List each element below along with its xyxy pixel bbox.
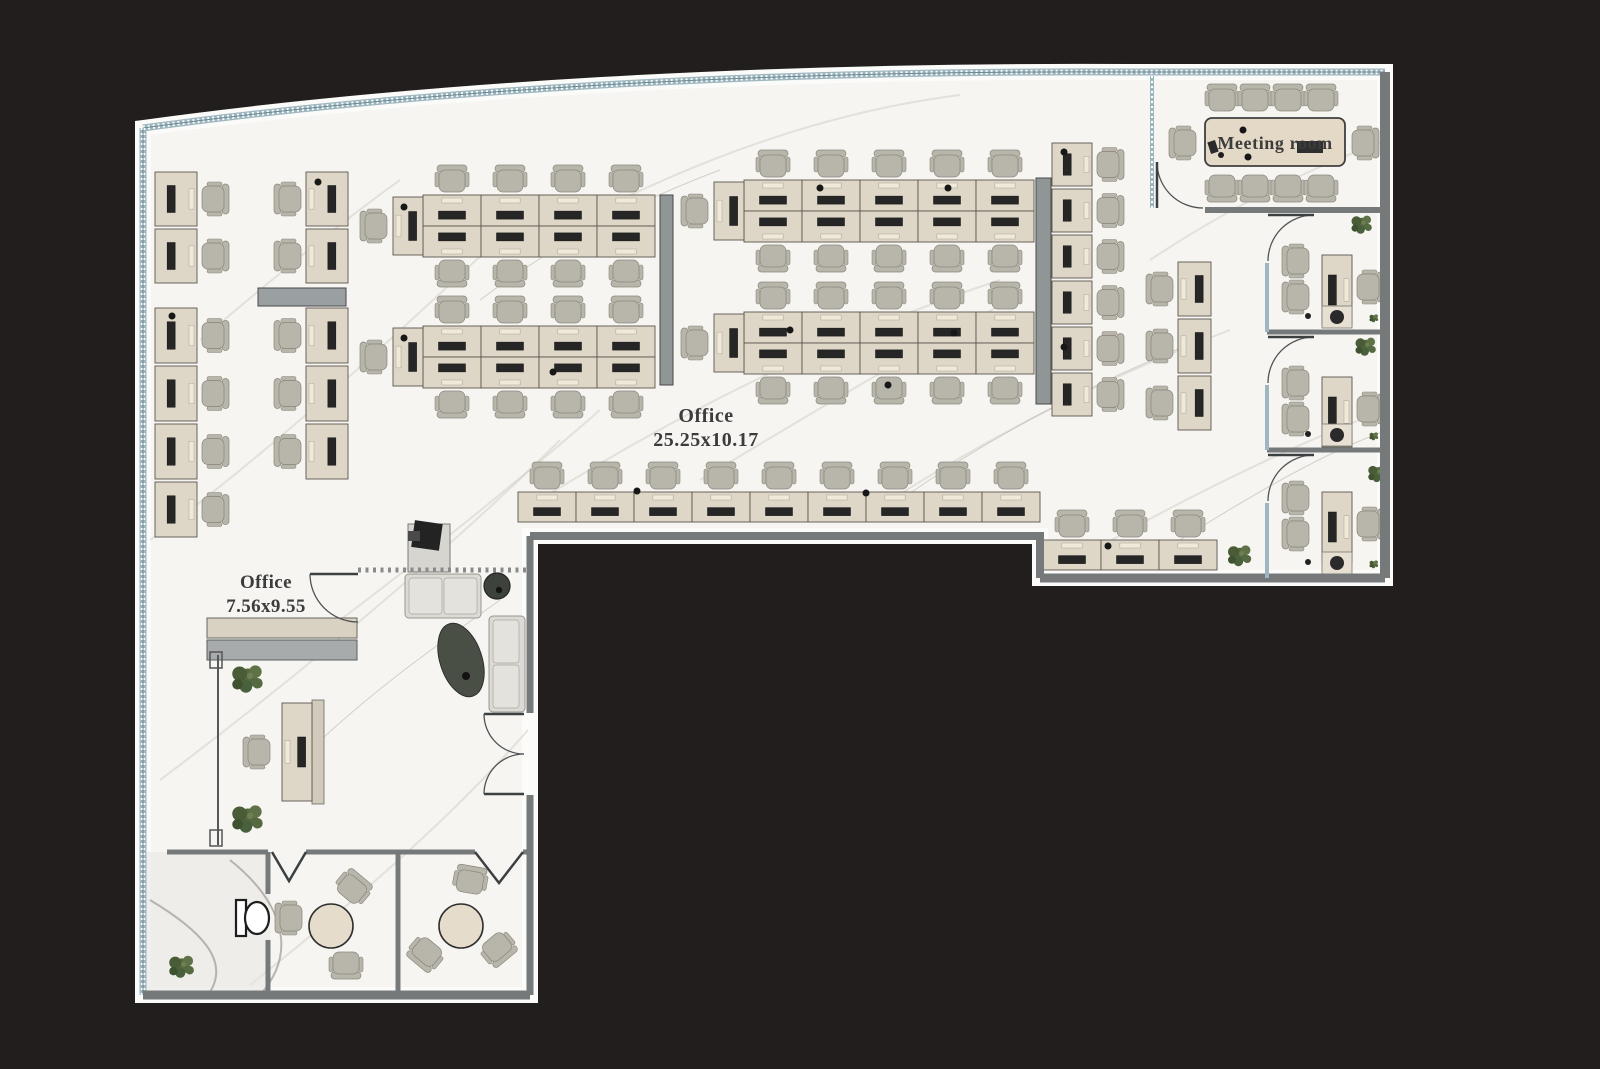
monitor bbox=[992, 328, 1019, 336]
vertical-sofa bbox=[489, 616, 525, 712]
phone bbox=[1305, 559, 1311, 565]
chair bbox=[1357, 270, 1384, 304]
desk-dot bbox=[863, 490, 870, 497]
chair bbox=[275, 901, 302, 935]
keyboard bbox=[995, 183, 1015, 188]
chair bbox=[988, 245, 1022, 272]
chair bbox=[493, 165, 527, 192]
keyboard bbox=[1344, 279, 1349, 302]
keyboard bbox=[937, 366, 957, 371]
chair bbox=[814, 150, 848, 177]
monitor bbox=[766, 508, 793, 516]
keyboard bbox=[189, 441, 194, 462]
keyboard bbox=[309, 189, 314, 209]
keyboard bbox=[189, 383, 194, 404]
chair bbox=[202, 239, 229, 273]
floor-plan-canvas: Office 25.25x10.17 Office 7.56x9.55 Meet… bbox=[0, 0, 1600, 1069]
monitor bbox=[730, 197, 738, 226]
monitor bbox=[1063, 246, 1071, 268]
keyboard bbox=[1084, 248, 1089, 264]
open-office-dims: 25.25x10.17 bbox=[653, 429, 759, 451]
monitor bbox=[818, 328, 845, 336]
chair bbox=[202, 182, 229, 216]
monitor bbox=[760, 328, 787, 336]
monitor bbox=[328, 186, 336, 213]
monitor bbox=[992, 218, 1019, 226]
keyboard bbox=[653, 495, 673, 500]
chair bbox=[1097, 240, 1124, 274]
chair bbox=[756, 377, 790, 404]
chair bbox=[930, 150, 964, 177]
monitor bbox=[992, 350, 1019, 358]
monitor bbox=[167, 186, 175, 213]
monitor bbox=[439, 342, 466, 350]
keyboard bbox=[616, 198, 636, 203]
monitor bbox=[613, 233, 640, 241]
keyboard bbox=[442, 329, 462, 334]
keyboard bbox=[189, 325, 194, 346]
keyboard bbox=[309, 441, 314, 462]
chair bbox=[551, 391, 585, 418]
chair bbox=[681, 326, 708, 360]
monitor bbox=[818, 350, 845, 358]
monitor bbox=[760, 350, 787, 358]
desk-dot bbox=[1245, 154, 1252, 161]
keyboard bbox=[558, 380, 578, 385]
monitor bbox=[934, 196, 961, 204]
chair bbox=[988, 377, 1022, 404]
chair bbox=[936, 462, 970, 489]
loveseat-sofa bbox=[405, 574, 481, 618]
monitor bbox=[876, 196, 903, 204]
toilet-bowl bbox=[245, 902, 269, 934]
monitor bbox=[167, 380, 175, 408]
chair bbox=[814, 377, 848, 404]
chair bbox=[988, 150, 1022, 177]
keyboard bbox=[879, 234, 899, 239]
monitor bbox=[167, 496, 175, 524]
monitor bbox=[555, 364, 582, 372]
chair bbox=[1205, 84, 1239, 111]
monitor bbox=[934, 350, 961, 358]
chair bbox=[1146, 386, 1173, 420]
monitor bbox=[818, 196, 845, 204]
monitor bbox=[328, 322, 336, 350]
monitor bbox=[497, 342, 524, 350]
printer-tray bbox=[408, 531, 420, 541]
chair bbox=[202, 435, 229, 469]
monitor bbox=[708, 508, 735, 516]
chair bbox=[551, 260, 585, 287]
chair bbox=[1205, 175, 1239, 202]
keyboard bbox=[189, 189, 194, 209]
keyboard bbox=[558, 198, 578, 203]
small-office-label: Office bbox=[240, 572, 292, 593]
desk-dot bbox=[787, 327, 794, 334]
monitor bbox=[613, 364, 640, 372]
chair bbox=[646, 462, 680, 489]
monitor bbox=[730, 329, 738, 358]
chair bbox=[872, 282, 906, 309]
keyboard bbox=[500, 380, 520, 385]
keyboard bbox=[285, 741, 290, 764]
chair bbox=[274, 239, 301, 273]
chair bbox=[1055, 510, 1089, 537]
monitor bbox=[328, 243, 336, 270]
chair bbox=[202, 493, 229, 527]
open-office-label: Office bbox=[678, 405, 733, 427]
keyboard bbox=[537, 495, 557, 500]
chair bbox=[1238, 84, 1272, 111]
keyboard bbox=[616, 380, 636, 385]
chair bbox=[994, 462, 1028, 489]
chair bbox=[1304, 84, 1338, 111]
monitor bbox=[1175, 556, 1202, 564]
monitor bbox=[328, 380, 336, 408]
keyboard bbox=[1181, 393, 1186, 413]
monitor bbox=[876, 218, 903, 226]
chair bbox=[1282, 280, 1309, 314]
wall-stub bbox=[258, 288, 346, 306]
keyboard bbox=[879, 183, 899, 188]
credenza-base bbox=[207, 640, 357, 660]
side-table-plant bbox=[496, 587, 502, 593]
chair bbox=[609, 296, 643, 323]
monitor bbox=[824, 508, 851, 516]
chair bbox=[1146, 272, 1173, 306]
chair bbox=[551, 165, 585, 192]
monitor bbox=[592, 508, 619, 516]
desk-dot bbox=[817, 185, 824, 192]
keyboard bbox=[1084, 202, 1089, 218]
desk-dot bbox=[885, 382, 892, 389]
chair bbox=[274, 182, 301, 216]
keyboard bbox=[995, 366, 1015, 371]
monitor bbox=[1063, 292, 1071, 314]
monitor bbox=[760, 196, 787, 204]
keyboard bbox=[763, 183, 783, 188]
stone-rug-dot bbox=[462, 672, 470, 680]
chair bbox=[756, 245, 790, 272]
monitor bbox=[1328, 397, 1336, 427]
credenza bbox=[207, 618, 357, 638]
chair bbox=[274, 319, 301, 353]
keyboard bbox=[769, 495, 789, 500]
desk-dot bbox=[945, 185, 952, 192]
monitor bbox=[497, 364, 524, 372]
chair bbox=[878, 462, 912, 489]
keyboard bbox=[821, 315, 841, 320]
chair bbox=[1113, 510, 1147, 537]
keyboard bbox=[711, 495, 731, 500]
chair bbox=[1357, 392, 1384, 426]
keyboard bbox=[442, 249, 462, 254]
keyboard bbox=[1178, 543, 1198, 548]
monitor bbox=[998, 508, 1025, 516]
monitor bbox=[934, 218, 961, 226]
keyboard bbox=[616, 249, 636, 254]
monitor bbox=[167, 438, 175, 466]
chair bbox=[1282, 366, 1309, 400]
keyboard bbox=[1344, 516, 1349, 539]
monitor bbox=[497, 233, 524, 241]
keyboard bbox=[763, 315, 783, 320]
chair bbox=[493, 391, 527, 418]
bench-divider bbox=[660, 195, 673, 385]
round-side-table bbox=[484, 573, 510, 599]
chair bbox=[202, 319, 229, 353]
keyboard bbox=[885, 495, 905, 500]
keyboard bbox=[309, 246, 314, 266]
keyboard bbox=[595, 495, 615, 500]
chair bbox=[1352, 126, 1379, 160]
floor-plan: Office 25.25x10.17 Office 7.56x9.55 Meet… bbox=[0, 0, 1600, 1069]
chair bbox=[1282, 481, 1309, 515]
chair bbox=[988, 282, 1022, 309]
keyboard bbox=[717, 200, 722, 222]
chair bbox=[202, 377, 229, 411]
chair bbox=[609, 165, 643, 192]
chair bbox=[756, 150, 790, 177]
bag bbox=[1330, 310, 1344, 324]
chair bbox=[930, 377, 964, 404]
chair bbox=[1097, 332, 1124, 366]
chair bbox=[930, 282, 964, 309]
desk-dot bbox=[315, 179, 322, 186]
monitor bbox=[1063, 154, 1071, 176]
meeting-room-label: Meeting room bbox=[1217, 133, 1332, 153]
monitor bbox=[497, 211, 524, 219]
chair bbox=[756, 282, 790, 309]
chair bbox=[872, 150, 906, 177]
keyboard bbox=[500, 198, 520, 203]
chair bbox=[435, 165, 469, 192]
chair bbox=[820, 462, 854, 489]
chair bbox=[274, 377, 301, 411]
desk-dot bbox=[550, 369, 557, 376]
keyboard bbox=[1181, 279, 1186, 299]
keyboard bbox=[879, 366, 899, 371]
bag bbox=[1330, 428, 1344, 442]
monitor bbox=[555, 233, 582, 241]
keyboard bbox=[396, 215, 401, 237]
bench-divider-right bbox=[1036, 178, 1051, 404]
keyboard bbox=[827, 495, 847, 500]
keyboard bbox=[717, 332, 722, 354]
monitor bbox=[613, 342, 640, 350]
keyboard bbox=[558, 249, 578, 254]
keyboard bbox=[309, 325, 314, 346]
monitor bbox=[409, 212, 417, 241]
keyboard bbox=[1001, 495, 1021, 500]
keyboard bbox=[558, 329, 578, 334]
monitor bbox=[439, 364, 466, 372]
round-table-2 bbox=[439, 904, 483, 948]
monitor bbox=[876, 328, 903, 336]
monitor bbox=[555, 211, 582, 219]
monitor bbox=[1059, 556, 1086, 564]
chair bbox=[1097, 286, 1124, 320]
monitor bbox=[1328, 512, 1336, 542]
keyboard bbox=[189, 246, 194, 266]
monitor bbox=[882, 508, 909, 516]
keyboard bbox=[879, 315, 899, 320]
keyboard bbox=[500, 249, 520, 254]
chair bbox=[762, 462, 796, 489]
bag bbox=[1330, 556, 1344, 570]
monitor bbox=[534, 508, 561, 516]
chair bbox=[1097, 378, 1124, 412]
desk-dot bbox=[1105, 543, 1112, 550]
monitor bbox=[650, 508, 677, 516]
chair bbox=[360, 209, 387, 243]
keyboard bbox=[763, 234, 783, 239]
desk-return-panel bbox=[312, 700, 324, 804]
chair bbox=[274, 435, 301, 469]
chair bbox=[681, 194, 708, 228]
chair bbox=[243, 735, 270, 769]
chair bbox=[1097, 148, 1124, 182]
wc-room bbox=[236, 900, 269, 936]
chair bbox=[609, 260, 643, 287]
chair bbox=[872, 245, 906, 272]
desk-dot bbox=[634, 488, 641, 495]
keyboard bbox=[442, 380, 462, 385]
keyboard bbox=[396, 346, 401, 368]
keyboard bbox=[309, 383, 314, 404]
chair bbox=[1282, 244, 1309, 278]
phone bbox=[1305, 313, 1311, 319]
monitor bbox=[1195, 390, 1203, 417]
monitor bbox=[1063, 200, 1071, 222]
chair bbox=[1271, 84, 1305, 111]
chair bbox=[1271, 175, 1305, 202]
chair bbox=[1357, 507, 1384, 541]
chair bbox=[551, 296, 585, 323]
desk-dot bbox=[401, 204, 408, 211]
monitor bbox=[818, 218, 845, 226]
monitor bbox=[940, 508, 967, 516]
keyboard bbox=[1181, 336, 1186, 356]
monitor bbox=[1195, 333, 1203, 360]
monitor bbox=[760, 218, 787, 226]
chair bbox=[530, 462, 564, 489]
small-office-dims: 7.56x9.55 bbox=[226, 596, 306, 617]
desk-dot bbox=[1061, 149, 1068, 156]
monitor bbox=[439, 233, 466, 241]
desk-dot bbox=[401, 335, 408, 342]
monitor bbox=[1195, 276, 1203, 303]
monitor bbox=[167, 322, 175, 350]
chair bbox=[588, 462, 622, 489]
keyboard bbox=[937, 315, 957, 320]
desk-dot bbox=[1061, 344, 1068, 351]
chair bbox=[435, 391, 469, 418]
chair bbox=[1304, 175, 1338, 202]
keyboard bbox=[995, 234, 1015, 239]
keyboard bbox=[189, 499, 194, 520]
chair bbox=[329, 952, 363, 979]
chair bbox=[609, 391, 643, 418]
desk-dot bbox=[951, 330, 958, 337]
monitor bbox=[409, 343, 417, 372]
keyboard bbox=[1084, 340, 1089, 356]
chair bbox=[1238, 175, 1272, 202]
keyboard bbox=[937, 234, 957, 239]
keyboard bbox=[821, 366, 841, 371]
keyboard bbox=[995, 315, 1015, 320]
keyboard bbox=[616, 329, 636, 334]
monitor bbox=[1063, 384, 1071, 406]
monitor bbox=[167, 243, 175, 270]
monitor bbox=[876, 350, 903, 358]
keyboard bbox=[1344, 401, 1349, 424]
monitor bbox=[992, 196, 1019, 204]
chair bbox=[360, 340, 387, 374]
chair bbox=[1146, 329, 1173, 363]
keyboard bbox=[943, 495, 963, 500]
chair bbox=[1171, 510, 1205, 537]
phone bbox=[1305, 431, 1311, 437]
keyboard bbox=[1084, 156, 1089, 172]
chair bbox=[1282, 517, 1309, 551]
chair bbox=[1169, 126, 1196, 160]
keyboard bbox=[442, 198, 462, 203]
chair bbox=[814, 245, 848, 272]
monitor bbox=[1117, 556, 1144, 564]
chair bbox=[704, 462, 738, 489]
chair bbox=[493, 260, 527, 287]
monitor bbox=[298, 737, 306, 767]
keyboard bbox=[500, 329, 520, 334]
keyboard bbox=[821, 234, 841, 239]
monitor bbox=[555, 342, 582, 350]
chair bbox=[435, 296, 469, 323]
desk-dot bbox=[169, 313, 176, 320]
chair bbox=[1097, 194, 1124, 228]
keyboard bbox=[1120, 543, 1140, 548]
monitor bbox=[613, 211, 640, 219]
chair bbox=[435, 260, 469, 287]
keyboard bbox=[821, 183, 841, 188]
monitor bbox=[1328, 275, 1336, 305]
keyboard bbox=[763, 366, 783, 371]
chair bbox=[493, 296, 527, 323]
monitor bbox=[328, 438, 336, 466]
chair bbox=[930, 245, 964, 272]
monitor bbox=[439, 211, 466, 219]
keyboard bbox=[1084, 294, 1089, 310]
chair bbox=[814, 282, 848, 309]
chair bbox=[872, 377, 906, 404]
keyboard bbox=[1084, 386, 1089, 402]
round-table-1 bbox=[309, 904, 353, 948]
chair bbox=[1282, 402, 1309, 436]
keyboard bbox=[1062, 543, 1082, 548]
